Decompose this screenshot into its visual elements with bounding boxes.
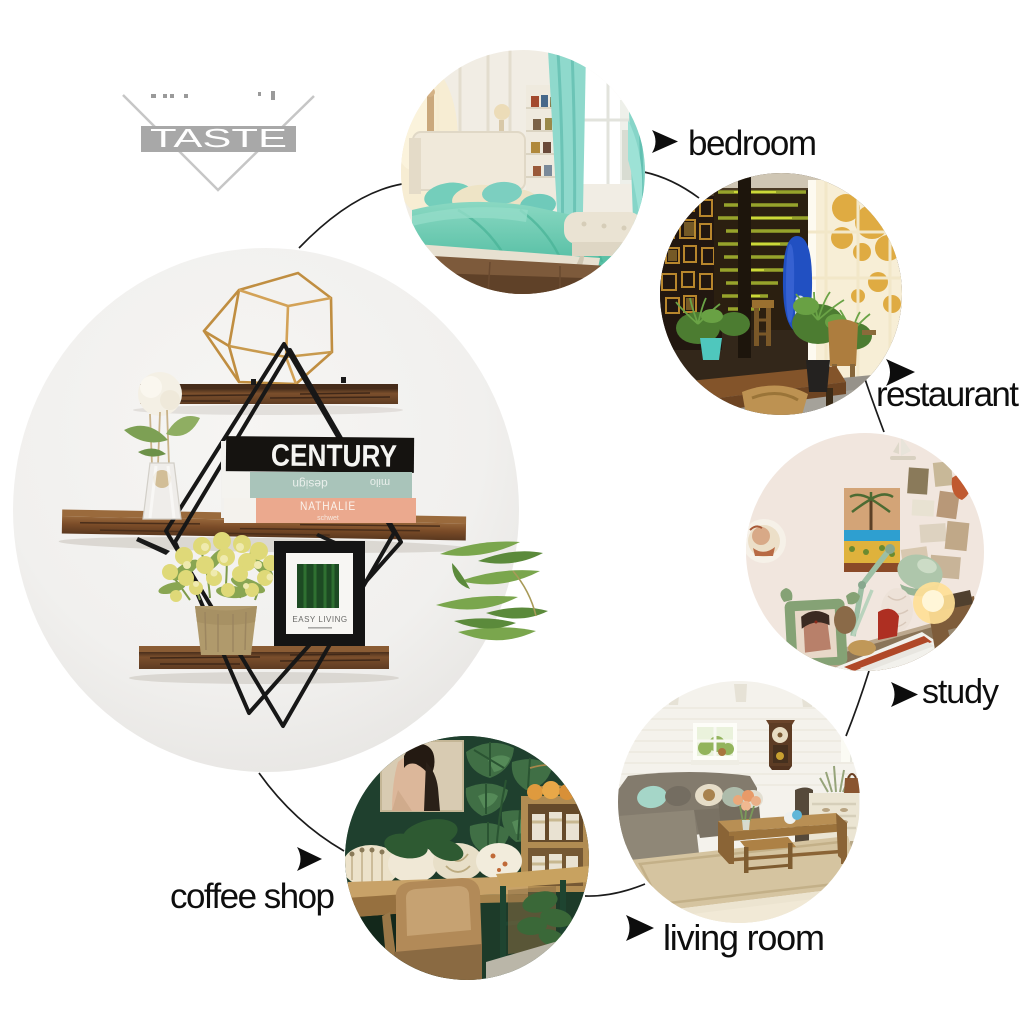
- svg-text:living room: living room: [663, 917, 825, 958]
- svg-text:EASY LIVING: EASY LIVING: [292, 615, 347, 624]
- svg-text:bedroom: bedroom: [688, 124, 817, 163]
- svg-text:CENTURY: CENTURY: [271, 438, 398, 474]
- svg-text:study: study: [922, 673, 999, 711]
- svg-text:milo: milo: [370, 476, 390, 488]
- svg-text:TASTE: TASTE: [150, 123, 287, 153]
- svg-text:design: design: [292, 477, 327, 491]
- svg-text:NATHALIE: NATHALIE: [300, 499, 356, 513]
- svg-text:coffee shop: coffee shop: [170, 877, 335, 916]
- svg-text:restaurant: restaurant: [876, 375, 1019, 414]
- svg-text:schwet: schwet: [317, 515, 339, 522]
